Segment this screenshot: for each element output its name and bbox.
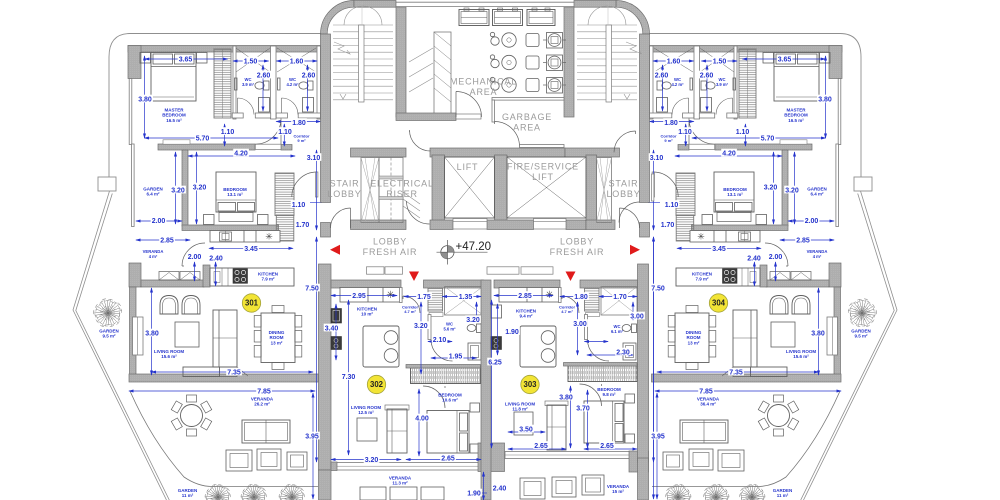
svg-text:4.00: 4.00 [415,416,429,423]
svg-text:1.95: 1.95 [449,353,463,360]
svg-text:2.40: 2.40 [747,256,761,263]
svg-text:7.35: 7.35 [227,370,241,377]
svg-text:3.20: 3.20 [466,317,480,324]
svg-text:10.6 m²: 10.6 m² [442,398,458,403]
svg-text:2.65: 2.65 [600,443,614,450]
svg-text:9.4 m²: 9.4 m² [519,314,533,319]
svg-text:3.20: 3.20 [171,188,185,195]
svg-text:FRESH AIR: FRESH AIR [550,247,605,257]
svg-text:3.65: 3.65 [179,57,193,64]
svg-text:3.00: 3.00 [630,314,644,321]
svg-text:12.5 m²: 12.5 m² [358,410,374,415]
svg-text:1.60: 1.60 [667,59,681,66]
svg-text:1.50: 1.50 [713,59,727,66]
svg-text:1.10: 1.10 [678,129,692,136]
svg-text:LIFT: LIFT [532,172,554,182]
svg-text:11.3 m²: 11.3 m² [392,481,408,486]
svg-text:3.9 m²: 3.9 m² [716,82,729,87]
svg-text:7.50: 7.50 [651,286,665,293]
svg-text:1.80: 1.80 [574,294,588,301]
svg-text:2.85: 2.85 [796,238,810,245]
svg-text:3.20: 3.20 [764,185,778,192]
svg-text:302: 302 [370,380,384,389]
svg-text:MECHANICAL: MECHANICAL [450,77,517,87]
svg-text:16.5 m²: 16.5 m² [166,118,182,123]
svg-text:6.4 m²: 6.4 m² [146,192,160,197]
svg-text:5.6 m²: 5.6 m² [443,326,456,331]
svg-text:3.40: 3.40 [325,326,339,333]
svg-text:15.6 m²: 15.6 m² [793,354,809,359]
svg-text:304: 304 [712,299,726,308]
svg-text:7.85: 7.85 [257,389,271,396]
svg-text:7.9 m²: 7.9 m² [695,277,709,282]
svg-text:2.65: 2.65 [534,443,548,450]
svg-text:11.8 m²: 11.8 m² [512,407,528,412]
svg-text:7.30: 7.30 [342,374,356,381]
svg-text:4.7 m²: 4.7 m² [404,309,416,314]
svg-text:301: 301 [245,299,259,308]
svg-text:LOBBY: LOBBY [373,237,407,247]
svg-text:6.4 m²: 6.4 m² [810,192,824,197]
svg-text:3.00: 3.00 [573,321,587,328]
svg-text:4.7 m²: 4.7 m² [561,309,573,314]
svg-text:10 m²: 10 m² [361,312,373,317]
svg-text:2.65: 2.65 [441,456,455,463]
svg-text:1.90: 1.90 [467,491,481,498]
svg-text:2.00: 2.00 [805,218,819,225]
svg-text:3.50: 3.50 [519,427,533,434]
svg-text:2.00: 2.00 [769,254,783,261]
svg-text:GARBAGE: GARBAGE [502,112,552,122]
svg-text:2.00: 2.00 [152,218,166,225]
svg-text:3.10: 3.10 [307,155,321,162]
svg-text:1.80: 1.80 [664,120,678,127]
svg-text:ELECTRICAL: ELECTRICAL [370,179,434,189]
svg-text:✳: ✳ [265,232,273,242]
svg-text:LOBBY: LOBBY [606,189,640,199]
svg-text:2.40: 2.40 [493,486,507,493]
svg-text:3.80: 3.80 [818,97,832,104]
svg-text:3.65: 3.65 [778,57,792,64]
svg-text:3.20: 3.20 [365,457,379,464]
svg-text:36.4 m²: 36.4 m² [700,402,716,407]
svg-text:1.80: 1.80 [292,120,306,127]
svg-text:3.80: 3.80 [811,331,825,338]
svg-text:4.2 m²: 4.2 m² [286,82,299,87]
svg-text:2.95: 2.95 [352,293,366,300]
svg-text:7.85: 7.85 [699,389,713,396]
svg-text:4 m²: 4 m² [149,254,158,259]
svg-text:FRESH AIR: FRESH AIR [363,247,418,257]
svg-text:9.5 m²: 9.5 m² [102,334,116,339]
svg-text:2.10: 2.10 [433,337,447,344]
svg-text:6.1 m²: 6.1 m² [611,329,624,334]
svg-text:9 m²: 9 m² [297,138,306,143]
svg-text:1.70: 1.70 [661,222,675,229]
svg-text:3.20: 3.20 [193,185,207,192]
svg-text:1.60: 1.60 [290,59,304,66]
svg-text:1.70: 1.70 [296,222,310,229]
svg-text:3.45: 3.45 [244,246,258,253]
svg-text:STAIR: STAIR [330,179,360,189]
svg-text:1.70: 1.70 [613,294,627,301]
svg-text:2.30: 2.30 [616,350,630,357]
svg-text:RISER: RISER [386,189,418,199]
svg-text:3.20: 3.20 [785,188,799,195]
svg-text:6.25: 6.25 [488,360,502,367]
svg-text:AREA: AREA [470,87,498,97]
svg-text:2.00: 2.00 [188,254,202,261]
svg-text:26.2 m²: 26.2 m² [254,402,270,407]
svg-text:11 m²: 11 m² [777,493,789,498]
svg-text:2.60: 2.60 [655,73,669,80]
svg-text:3.95: 3.95 [651,434,665,441]
svg-text:1.10: 1.10 [665,202,679,209]
svg-text:2.85: 2.85 [160,238,174,245]
svg-text:7.35: 7.35 [729,370,743,377]
svg-text:1.35: 1.35 [459,294,473,301]
svg-text:2.60: 2.60 [302,73,316,80]
svg-text:1.10: 1.10 [736,129,750,136]
svg-text:1.10: 1.10 [278,129,292,136]
svg-text:3.20: 3.20 [414,323,428,330]
svg-text:13 m²: 13 m² [688,340,700,345]
svg-text:7.9 m²: 7.9 m² [261,277,275,282]
svg-text:9.8 m²: 9.8 m² [602,392,616,397]
svg-text:9 m²: 9 m² [664,138,673,143]
svg-text:4.20: 4.20 [234,151,248,158]
svg-text:2.60: 2.60 [257,73,271,80]
svg-text:4 m²: 4 m² [813,254,822,259]
svg-text:15 m²: 15 m² [612,489,624,494]
svg-text:1.10: 1.10 [221,129,235,136]
svg-text:2.85: 2.85 [518,293,532,300]
svg-text:303: 303 [523,380,537,389]
svg-text:FIRE/SERVICE: FIRE/SERVICE [507,162,579,172]
svg-text:13 m²: 13 m² [271,340,283,345]
svg-text:3.70: 3.70 [576,406,590,413]
svg-text:3.95: 3.95 [305,434,319,441]
svg-text:1.75: 1.75 [417,294,431,301]
svg-text:11 m²: 11 m² [182,493,194,498]
svg-text:1.10: 1.10 [292,202,306,209]
svg-text:LOBBY: LOBBY [560,237,594,247]
svg-text:+47.20: +47.20 [456,241,492,253]
svg-text:3.80: 3.80 [145,331,159,338]
svg-text:3.10: 3.10 [650,155,664,162]
svg-text:5.70: 5.70 [196,136,210,143]
svg-text:LOBBY: LOBBY [327,189,361,199]
svg-text:3.9 m²: 3.9 m² [242,82,255,87]
svg-text:3.80: 3.80 [138,97,152,104]
svg-text:1.50: 1.50 [244,59,258,66]
svg-text:1.90: 1.90 [505,329,519,336]
svg-text:4.20: 4.20 [722,151,736,158]
svg-text:7.50: 7.50 [305,286,319,293]
svg-text:15.6 m²: 15.6 m² [161,354,177,359]
svg-text:13.1 m²: 13.1 m² [727,192,743,197]
svg-text:3.45: 3.45 [712,246,726,253]
svg-text:13.1 m²: 13.1 m² [227,192,243,197]
svg-text:3.80: 3.80 [559,395,573,402]
svg-text:STAIR: STAIR [609,179,639,189]
svg-text:2.60: 2.60 [700,73,714,80]
svg-text:LIFT: LIFT [457,162,479,172]
svg-text:5.70: 5.70 [761,136,775,143]
svg-text:4.2 m²: 4.2 m² [671,82,684,87]
svg-text:9.5 m²: 9.5 m² [854,334,868,339]
svg-text:2.40: 2.40 [209,256,223,263]
svg-text:AREA: AREA [513,122,541,132]
svg-text:16.5 m²: 16.5 m² [788,118,804,123]
